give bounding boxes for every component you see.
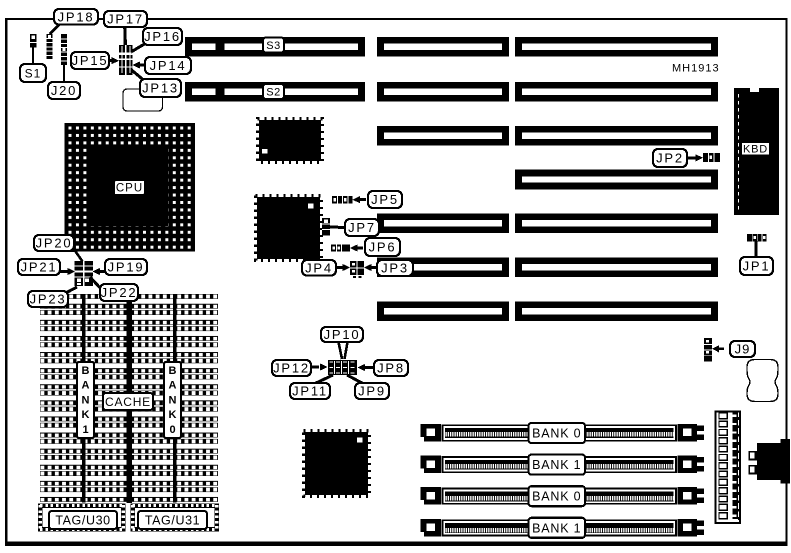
svg-text:B: B: [82, 365, 90, 377]
svg-text:JP11: JP11: [292, 384, 328, 399]
svg-text:KBD: KBD: [743, 144, 768, 156]
svg-text:JP16: JP16: [144, 29, 181, 44]
svg-text:JP23: JP23: [30, 292, 67, 307]
svg-text:JP9: JP9: [358, 384, 386, 399]
svg-text:JP1: JP1: [743, 259, 771, 274]
svg-text:S2: S2: [266, 86, 280, 98]
svg-text:JP20: JP20: [36, 236, 73, 251]
svg-text:CPU: CPU: [116, 183, 143, 195]
svg-text:JP10: JP10: [324, 327, 361, 342]
svg-text:B: B: [169, 365, 177, 377]
svg-text:S1: S1: [25, 66, 42, 80]
svg-text:MH1913: MH1913: [672, 63, 720, 75]
svg-text:BANK 1: BANK 1: [532, 458, 581, 472]
svg-text:A: A: [169, 380, 177, 392]
svg-text:S3: S3: [266, 40, 280, 52]
svg-text:BANK 0: BANK 0: [532, 427, 581, 441]
svg-text:JP15: JP15: [72, 53, 109, 68]
svg-text:JP2: JP2: [656, 151, 684, 166]
svg-text:J20: J20: [51, 83, 77, 98]
svg-text:JP18: JP18: [58, 9, 95, 24]
svg-text:JP3: JP3: [381, 261, 409, 276]
svg-text:BANK 1: BANK 1: [532, 521, 581, 535]
svg-text:JP19: JP19: [108, 260, 145, 275]
svg-text:JP7: JP7: [348, 220, 376, 235]
svg-text:N: N: [82, 394, 90, 406]
svg-text:J9: J9: [735, 342, 751, 357]
svg-text:A: A: [82, 380, 90, 392]
svg-text:JP5: JP5: [371, 192, 399, 207]
svg-text:CACHE: CACHE: [105, 395, 151, 409]
svg-text:JP13: JP13: [142, 81, 179, 96]
svg-text:JP4: JP4: [305, 260, 333, 275]
svg-text:JP21: JP21: [21, 260, 58, 275]
svg-text:BANK 0: BANK 0: [532, 490, 581, 504]
svg-text:JP22: JP22: [101, 285, 138, 300]
svg-text:0: 0: [169, 424, 175, 436]
svg-text:K: K: [82, 409, 90, 421]
svg-text:N: N: [169, 394, 177, 406]
svg-text:JP12: JP12: [273, 361, 310, 376]
svg-text:JP14: JP14: [150, 58, 187, 73]
svg-text:JP17: JP17: [107, 12, 144, 27]
svg-text:TAG/U31: TAG/U31: [145, 514, 200, 528]
svg-text:JP8: JP8: [377, 361, 405, 376]
svg-text:TAG/U30: TAG/U30: [55, 514, 110, 528]
svg-text:JP6: JP6: [369, 240, 397, 255]
svg-text:K: K: [169, 409, 177, 421]
svg-text:1: 1: [82, 424, 88, 436]
